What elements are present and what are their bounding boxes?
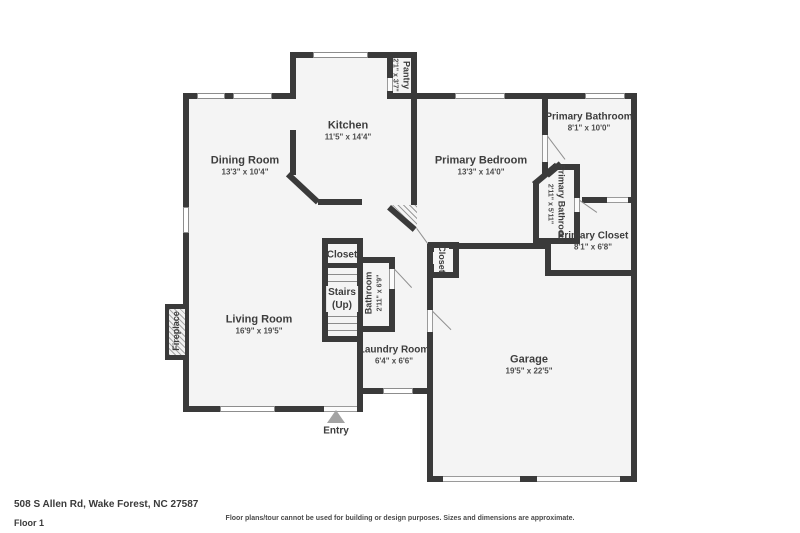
wall [533,182,539,244]
wall [417,93,455,99]
room-name: Closet [435,245,447,273]
floor-area [430,392,634,477]
room-name: Garage [506,353,553,367]
wall [427,476,443,482]
room-label-closet-hall: Closet [435,245,447,273]
wall [413,388,427,394]
wall [574,164,580,198]
wall [582,197,607,203]
room-name: Primary Bathroom [545,110,632,123]
entry-label: Entry [323,425,349,438]
room-name: Pantry [400,58,412,91]
wall [290,52,313,58]
room-name: Primary Bedroom [435,154,527,168]
garage-door [443,476,520,482]
wall [275,406,324,412]
wall [631,93,637,482]
room-name: Dining Room [211,154,279,168]
wall [428,264,434,278]
door-opening [542,135,548,162]
room-name: Closet [327,249,358,262]
room-label-pantry: Pantry 2'1" x 3'7" [391,58,412,91]
room-name: Fireplace [171,311,183,351]
wall [290,52,296,99]
fireplace-label: Fireplace [171,311,183,351]
room-label-stairs: Stairs (Up) [326,286,358,312]
window [233,93,272,99]
room-dims: 2'1" x 3'7" [391,58,400,91]
wall [628,197,637,203]
room-label-primary-closet: Primary Closet 8'1" x 6'8" [558,229,629,252]
wall [225,93,233,99]
room-name: Stairs [328,286,356,299]
door-opening [427,310,433,332]
room-label-dining-room: Dining Room 13'3" x 10'4" [211,154,279,179]
floor-plan: Dining Room 13'3" x 10'4" Kitchen 11'5" … [0,0,800,533]
wall [389,257,395,269]
wall [318,199,362,205]
wall [290,130,296,175]
wall [620,476,637,482]
wall [428,242,434,252]
wall [411,52,417,205]
door-opening [389,269,395,289]
room-dims: 2'11" x 6'9" [375,272,384,315]
property-address: 508 S Allen Rd, Wake Forest, NC 27587 [14,499,198,510]
room-dims: 8'1" x 10'0" [545,123,632,133]
stairs-direction: (Up) [328,299,356,312]
wall [357,326,395,332]
window [455,93,505,99]
room-dims: 8'1" x 6'8" [558,242,629,252]
room-dims: 2'11" x 5'11" [546,165,555,244]
window [197,93,225,99]
wall [545,270,637,276]
room-name: Living Room [226,313,293,327]
window [220,406,275,412]
room-label-laundry-room: Laundry Room 6'4" x 6'6" [359,343,430,366]
window [313,52,368,58]
door-opening [607,197,628,203]
room-label-garage: Garage 19'5" x 22'5" [506,353,553,378]
window [383,388,413,394]
wall [183,406,220,412]
room-dims: 19'5" x 22'5" [506,367,553,377]
wall [363,388,383,394]
entry-arrow-icon [327,410,345,423]
room-label-kitchen: Kitchen 11'5" x 14'4" [325,119,372,144]
room-dims: 13'3" x 10'4" [211,168,279,178]
room-label-primary-bedroom: Primary Bedroom 13'3" x 14'0" [435,154,527,179]
window [183,207,189,233]
room-label-bathroom: Bathroom 2'11" x 6'9" [364,272,385,315]
disclaimer-text: Floor plans/tour cannot be used for buil… [0,515,800,522]
room-dims: 11'5" x 14'4" [325,133,372,143]
wall [183,93,189,207]
room-dims: 16'9" x 19'5" [226,327,293,337]
room-name: Entry [323,425,349,438]
wall [520,476,537,482]
room-name: Laundry Room [359,343,430,356]
room-name: Bathroom [364,272,376,315]
garage-door [537,476,620,482]
window [585,93,625,99]
room-dims: 6'4" x 6'6" [359,356,430,366]
room-label-living-room: Living Room 16'9" x 19'5" [226,313,293,338]
room-label-closet-upper: Closet [327,249,358,262]
room-name: Kitchen [325,119,372,133]
wall [322,336,363,342]
room-dims: 13'3" x 14'0" [435,168,527,178]
room-label-primary-bathroom: Primary Bathroom 8'1" x 10'0" [545,110,632,133]
room-name: Primary Closet [558,229,629,242]
